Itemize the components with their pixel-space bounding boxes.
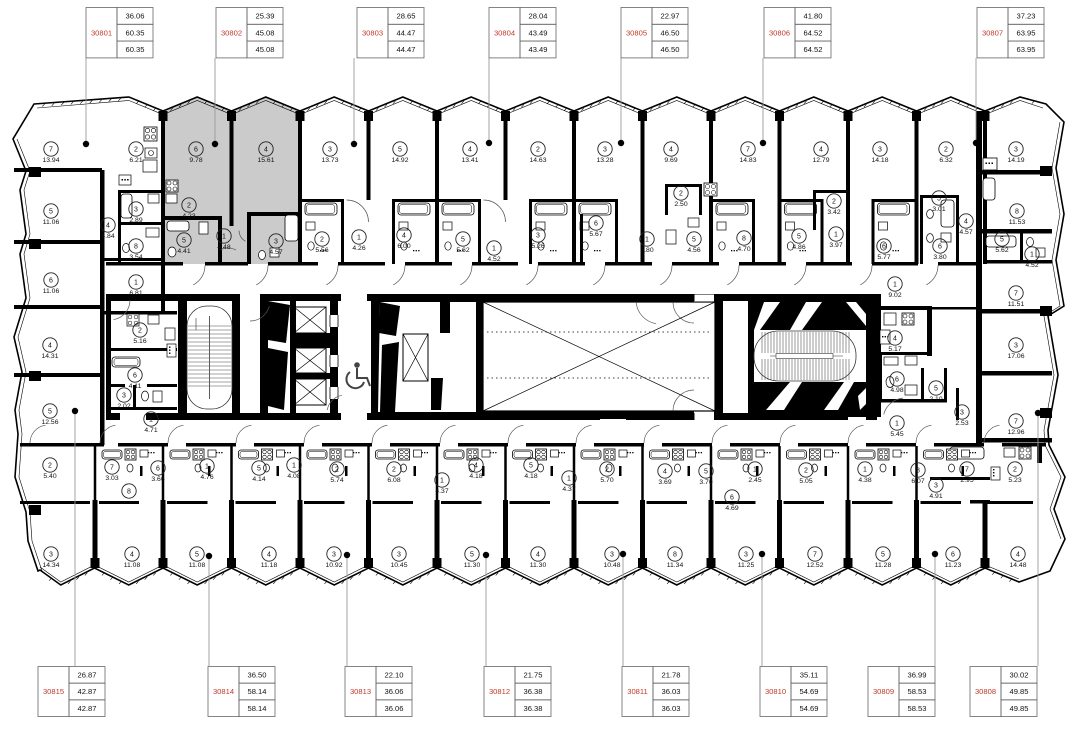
svg-text:14.34: 14.34	[42, 562, 59, 569]
svg-text:6: 6	[49, 278, 53, 285]
svg-text:6.00: 6.00	[397, 243, 410, 250]
svg-text:3.42: 3.42	[827, 209, 840, 216]
svg-text:30811: 30811	[627, 687, 648, 696]
svg-text:25.39: 25.39	[255, 12, 274, 21]
svg-text:3.80: 3.80	[933, 254, 946, 261]
svg-text:30804: 30804	[494, 28, 515, 37]
svg-text:45.08: 45.08	[255, 28, 274, 37]
svg-text:3: 3	[134, 207, 138, 214]
svg-text:4.86: 4.86	[792, 244, 805, 251]
svg-text:30814: 30814	[213, 687, 234, 696]
svg-text:22.97: 22.97	[660, 12, 679, 21]
svg-text:13.28: 13.28	[596, 157, 613, 164]
svg-text:2: 2	[679, 191, 683, 198]
svg-text:11.30: 11.30	[530, 562, 547, 569]
svg-text:30.02: 30.02	[1009, 671, 1028, 680]
svg-text:30806: 30806	[769, 28, 790, 37]
svg-text:1: 1	[895, 421, 899, 428]
svg-text:2.02: 2.02	[117, 403, 130, 410]
svg-text:6: 6	[730, 495, 734, 502]
svg-text:5.67: 5.67	[589, 231, 602, 238]
svg-text:4.37: 4.37	[562, 486, 575, 493]
svg-text:5.16: 5.16	[133, 338, 146, 345]
svg-text:2: 2	[320, 237, 324, 244]
svg-text:58.14: 58.14	[247, 704, 266, 713]
svg-text:14.31: 14.31	[41, 353, 58, 360]
svg-text:4: 4	[669, 147, 673, 154]
svg-text:8: 8	[134, 244, 138, 251]
svg-text:36.03: 36.03	[661, 704, 680, 713]
svg-text:4: 4	[1016, 552, 1020, 559]
svg-text:5.26: 5.26	[531, 243, 544, 250]
svg-text:30808: 30808	[975, 687, 996, 696]
svg-text:4.37: 4.37	[435, 488, 448, 495]
svg-text:6: 6	[895, 377, 899, 384]
svg-text:3: 3	[536, 233, 540, 240]
svg-text:5: 5	[704, 469, 708, 476]
svg-text:14.92: 14.92	[391, 157, 408, 164]
svg-text:44.47: 44.47	[396, 45, 415, 54]
svg-text:1: 1	[567, 476, 571, 483]
svg-text:44.47: 44.47	[396, 28, 415, 37]
svg-text:5.70: 5.70	[600, 477, 613, 484]
svg-text:30815: 30815	[43, 687, 64, 696]
svg-text:60.35: 60.35	[125, 28, 144, 37]
svg-text:2.45: 2.45	[748, 477, 761, 484]
svg-text:4: 4	[663, 469, 667, 476]
svg-text:6: 6	[133, 373, 137, 380]
svg-text:10.45: 10.45	[390, 562, 407, 569]
svg-text:2: 2	[832, 199, 836, 206]
svg-text:4.41: 4.41	[177, 248, 190, 255]
svg-text:11.08: 11.08	[189, 562, 206, 569]
svg-text:4.76: 4.76	[200, 474, 213, 481]
svg-text:21.75: 21.75	[523, 671, 542, 680]
svg-text:11.53: 11.53	[1009, 219, 1026, 226]
svg-text:6.81: 6.81	[129, 290, 142, 297]
svg-text:2: 2	[804, 468, 808, 475]
svg-text:3.69: 3.69	[658, 479, 671, 486]
svg-text:1: 1	[492, 246, 496, 253]
svg-text:5.77: 5.77	[877, 254, 890, 261]
svg-text:11.25: 11.25	[738, 562, 755, 569]
svg-text:4.69: 4.69	[725, 505, 738, 512]
svg-text:6: 6	[194, 147, 198, 154]
svg-text:5: 5	[398, 147, 402, 154]
svg-text:5: 5	[470, 552, 474, 559]
svg-text:2.95: 2.95	[960, 477, 973, 484]
svg-text:30810: 30810	[765, 687, 786, 696]
svg-text:3: 3	[934, 483, 938, 490]
svg-text:1: 1	[357, 235, 361, 242]
svg-text:5.45: 5.45	[890, 431, 903, 438]
svg-text:2: 2	[134, 147, 138, 154]
svg-text:5.74: 5.74	[330, 477, 343, 484]
svg-text:4: 4	[264, 147, 268, 154]
svg-text:5.05: 5.05	[799, 478, 812, 485]
svg-text:6.32: 6.32	[939, 157, 952, 164]
svg-text:5: 5	[529, 463, 533, 470]
svg-text:5: 5	[934, 386, 938, 393]
svg-text:3.54: 3.54	[129, 254, 142, 261]
svg-text:42.87: 42.87	[77, 687, 96, 696]
svg-text:4.14: 4.14	[252, 476, 265, 483]
svg-text:54.69: 54.69	[799, 704, 818, 713]
svg-text:58.53: 58.53	[907, 687, 926, 696]
svg-text:28.04: 28.04	[528, 12, 547, 21]
svg-text:2.53: 2.53	[955, 420, 968, 427]
svg-text:30807: 30807	[982, 28, 1003, 37]
svg-text:30801: 30801	[91, 28, 112, 37]
svg-text:3: 3	[603, 147, 607, 154]
svg-text:3: 3	[328, 147, 332, 154]
svg-text:3: 3	[610, 552, 614, 559]
svg-text:2: 2	[48, 463, 52, 470]
svg-text:43.49: 43.49	[528, 45, 547, 54]
svg-text:7: 7	[965, 467, 969, 474]
svg-text:2: 2	[1013, 467, 1017, 474]
svg-text:5: 5	[1000, 237, 1004, 244]
svg-text:4.52: 4.52	[487, 256, 500, 263]
svg-text:12.56: 12.56	[41, 419, 58, 426]
svg-text:4.84: 4.84	[101, 233, 114, 240]
svg-text:4.91: 4.91	[929, 493, 942, 500]
svg-text:45.08: 45.08	[255, 45, 274, 54]
svg-text:7: 7	[49, 147, 53, 154]
svg-text:36.06: 36.06	[384, 704, 403, 713]
svg-text:21.78: 21.78	[661, 671, 680, 680]
svg-text:11.30: 11.30	[464, 562, 481, 569]
svg-text:7: 7	[110, 465, 114, 472]
svg-text:6.21: 6.21	[129, 157, 142, 164]
svg-text:12.79: 12.79	[812, 157, 829, 164]
svg-text:3.01: 3.01	[932, 206, 945, 213]
svg-text:30812: 30812	[489, 687, 510, 696]
svg-text:4.70: 4.70	[737, 246, 750, 253]
svg-text:1: 1	[134, 280, 138, 287]
svg-text:3: 3	[1014, 147, 1018, 154]
svg-text:3: 3	[332, 552, 336, 559]
svg-text:4: 4	[536, 552, 540, 559]
svg-text:5: 5	[48, 409, 52, 416]
svg-text:63.95: 63.95	[1016, 45, 1035, 54]
svg-text:3.66: 3.66	[151, 476, 164, 483]
svg-text:7: 7	[813, 552, 817, 559]
svg-text:5: 5	[797, 234, 801, 241]
svg-text:36.99: 36.99	[907, 671, 926, 680]
svg-text:60.35: 60.35	[125, 45, 144, 54]
svg-text:6: 6	[938, 244, 942, 251]
svg-text:8: 8	[1015, 209, 1019, 216]
svg-text:30803: 30803	[362, 28, 383, 37]
svg-text:14.48: 14.48	[1009, 562, 1026, 569]
svg-text:4: 4	[130, 552, 134, 559]
svg-text:36.06: 36.06	[384, 687, 403, 696]
svg-text:11.06: 11.06	[43, 219, 60, 226]
svg-text:7: 7	[1014, 291, 1018, 298]
svg-text:2: 2	[605, 467, 609, 474]
svg-text:5.80: 5.80	[640, 247, 653, 254]
svg-text:64.52: 64.52	[803, 28, 822, 37]
svg-text:3: 3	[274, 239, 278, 246]
svg-text:49.85: 49.85	[1009, 687, 1028, 696]
svg-text:9.78: 9.78	[189, 157, 202, 164]
svg-text:5: 5	[195, 552, 199, 559]
svg-text:64.52: 64.52	[803, 45, 822, 54]
svg-text:41.80: 41.80	[803, 12, 822, 21]
svg-text:5.17: 5.17	[888, 346, 901, 353]
svg-text:3: 3	[878, 147, 882, 154]
svg-text:5.62: 5.62	[995, 247, 1008, 254]
svg-text:54.69: 54.69	[799, 687, 818, 696]
svg-text:1: 1	[205, 464, 209, 471]
svg-text:30813: 30813	[350, 687, 371, 696]
svg-text:4: 4	[474, 463, 478, 470]
svg-text:11.18: 11.18	[261, 562, 278, 569]
svg-text:4.56: 4.56	[687, 247, 700, 254]
svg-text:22.10: 22.10	[384, 671, 403, 680]
svg-text:17.06: 17.06	[1007, 353, 1024, 360]
svg-text:4.08: 4.08	[287, 473, 300, 480]
svg-text:4: 4	[267, 552, 271, 559]
svg-text:1: 1	[440, 478, 444, 485]
svg-text:1: 1	[645, 237, 649, 244]
svg-text:6: 6	[156, 466, 160, 473]
svg-text:3.97: 3.97	[829, 242, 842, 249]
svg-text:58.14: 58.14	[247, 687, 266, 696]
svg-text:42.87: 42.87	[77, 704, 96, 713]
svg-text:12.52: 12.52	[806, 562, 823, 569]
svg-text:11.08: 11.08	[124, 562, 141, 569]
svg-text:1: 1	[863, 467, 867, 474]
svg-text:3: 3	[1014, 343, 1018, 350]
svg-text:2: 2	[536, 147, 540, 154]
svg-text:5.56: 5.56	[315, 247, 328, 254]
svg-text:8: 8	[916, 468, 920, 475]
svg-text:43.49: 43.49	[528, 28, 547, 37]
svg-text:3: 3	[122, 393, 126, 400]
svg-text:4.26: 4.26	[352, 245, 365, 252]
svg-text:11.51: 11.51	[1008, 301, 1025, 308]
svg-text:3: 3	[397, 552, 401, 559]
svg-text:36.03: 36.03	[661, 687, 680, 696]
svg-text:2.89: 2.89	[129, 217, 142, 224]
svg-text:11.34: 11.34	[667, 562, 684, 569]
svg-text:63.95: 63.95	[1016, 28, 1035, 37]
svg-text:4.71: 4.71	[144, 427, 157, 434]
svg-text:3: 3	[49, 552, 53, 559]
svg-text:4.57: 4.57	[269, 249, 282, 256]
svg-text:8: 8	[127, 489, 131, 496]
svg-text:2: 2	[392, 467, 396, 474]
svg-text:13.94: 13.94	[42, 157, 59, 164]
svg-text:4: 4	[106, 223, 110, 230]
svg-text:13.41: 13.41	[461, 157, 478, 164]
svg-text:7: 7	[1014, 419, 1018, 426]
svg-text:4.52: 4.52	[1025, 262, 1038, 269]
svg-text:36.50: 36.50	[247, 671, 266, 680]
svg-text:3: 3	[960, 410, 964, 417]
svg-text:1: 1	[292, 463, 296, 470]
svg-text:5.40: 5.40	[43, 473, 56, 480]
svg-text:1: 1	[149, 417, 153, 424]
svg-text:4.57: 4.57	[959, 229, 972, 236]
svg-text:4: 4	[402, 233, 406, 240]
svg-text:2.10: 2.10	[929, 396, 942, 403]
svg-text:5: 5	[881, 552, 885, 559]
svg-text:4: 4	[893, 336, 897, 343]
svg-text:9.02: 9.02	[888, 292, 901, 299]
svg-text:30802: 30802	[221, 28, 242, 37]
svg-text:46.50: 46.50	[660, 28, 679, 37]
svg-text:11.23: 11.23	[945, 562, 962, 569]
svg-text:1: 1	[893, 282, 897, 289]
svg-text:4.38: 4.38	[858, 477, 871, 484]
svg-text:4.48: 4.48	[217, 244, 230, 251]
svg-text:8: 8	[742, 236, 746, 243]
svg-text:58.53: 58.53	[907, 704, 926, 713]
svg-text:5: 5	[49, 209, 53, 216]
svg-text:14.18: 14.18	[871, 157, 888, 164]
svg-text:14.83: 14.83	[739, 157, 756, 164]
svg-text:5: 5	[937, 196, 941, 203]
svg-text:7: 7	[746, 147, 750, 154]
svg-text:26.87: 26.87	[77, 671, 96, 680]
svg-text:5.23: 5.23	[1008, 477, 1021, 484]
svg-text:49.85: 49.85	[1009, 704, 1028, 713]
svg-text:6.08: 6.08	[387, 477, 400, 484]
svg-text:8: 8	[673, 552, 677, 559]
svg-text:4: 4	[48, 343, 52, 350]
svg-text:4.98: 4.98	[890, 387, 903, 394]
svg-text:1: 1	[1030, 252, 1034, 259]
svg-text:36.06: 36.06	[125, 12, 144, 21]
svg-text:6: 6	[951, 552, 955, 559]
svg-text:5: 5	[182, 238, 186, 245]
svg-text:37.23: 37.23	[1016, 12, 1035, 21]
svg-text:30809: 30809	[873, 687, 894, 696]
svg-text:11.28: 11.28	[875, 562, 892, 569]
svg-text:1: 1	[222, 234, 226, 241]
svg-text:30805: 30805	[626, 28, 647, 37]
svg-text:10.48: 10.48	[603, 562, 620, 569]
svg-text:36.38: 36.38	[523, 704, 542, 713]
svg-text:14.19: 14.19	[1007, 157, 1024, 164]
svg-text:4.18: 4.18	[469, 473, 482, 480]
svg-text:3.70: 3.70	[699, 479, 712, 486]
svg-text:4.11: 4.11	[129, 383, 142, 390]
svg-text:46.50: 46.50	[660, 45, 679, 54]
svg-text:6.07: 6.07	[911, 478, 924, 485]
svg-text:5: 5	[461, 237, 465, 244]
svg-text:35.11: 35.11	[800, 671, 818, 680]
svg-text:2: 2	[187, 203, 191, 210]
svg-text:5: 5	[692, 237, 696, 244]
svg-text:1: 1	[753, 467, 757, 474]
svg-text:14.63: 14.63	[529, 157, 546, 164]
svg-text:2: 2	[138, 328, 142, 335]
svg-text:4: 4	[964, 219, 968, 226]
svg-text:2: 2	[944, 147, 948, 154]
svg-text:36.38: 36.38	[523, 687, 542, 696]
svg-text:2.50: 2.50	[674, 201, 687, 208]
svg-text:1: 1	[834, 232, 838, 239]
svg-text:9.69: 9.69	[664, 157, 677, 164]
svg-text:4: 4	[819, 147, 823, 154]
svg-text:28.65: 28.65	[396, 12, 415, 21]
svg-text:5.62: 5.62	[456, 247, 469, 254]
svg-text:5: 5	[257, 466, 261, 473]
svg-text:11.06: 11.06	[43, 288, 60, 295]
svg-text:3: 3	[744, 552, 748, 559]
svg-text:3.03: 3.03	[105, 475, 118, 482]
svg-text:2: 2	[335, 467, 339, 474]
svg-text:10.92: 10.92	[325, 562, 342, 569]
svg-text:13.73: 13.73	[321, 157, 338, 164]
svg-text:15.61: 15.61	[257, 157, 274, 164]
svg-text:6: 6	[882, 244, 886, 251]
svg-text:4: 4	[468, 147, 472, 154]
svg-text:4.18: 4.18	[524, 473, 537, 480]
svg-text:12.96: 12.96	[1007, 429, 1024, 436]
svg-text:6: 6	[594, 221, 598, 228]
svg-text:4.23: 4.23	[182, 213, 195, 220]
